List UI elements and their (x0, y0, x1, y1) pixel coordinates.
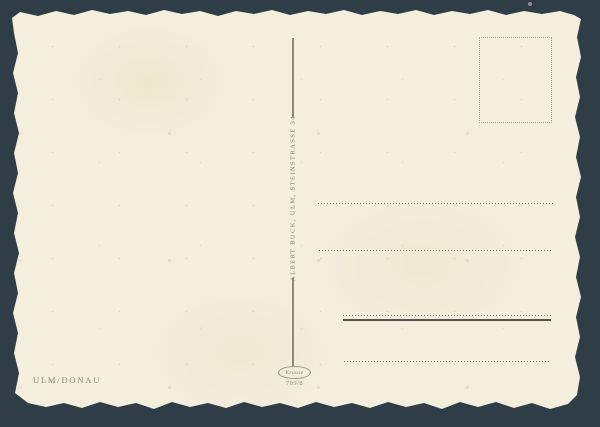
address-line-3 (343, 315, 551, 317)
address-line-2 (319, 250, 553, 252)
publisher-logo: Krause (278, 366, 311, 379)
postcard-back: ALBERT BUCK, ULM, STEINSTRASSE 34 ULM/DO… (12, 9, 582, 410)
stamp-box (479, 37, 552, 123)
series-number: 709/8 (278, 380, 311, 387)
postcard-caption: ULM/DONAU (33, 375, 101, 385)
divider-line-bottom (292, 278, 294, 366)
address-line-4 (344, 361, 551, 363)
scanned-photo-background: { "postcard": { "publisher_imprint": "AL… (0, 0, 600, 427)
divider-line-top (292, 38, 294, 117)
publisher-imprint: ALBERT BUCK, ULM, STEINSTRASSE 34 (284, 117, 302, 279)
address-line-1 (318, 203, 553, 205)
dust-speck (528, 2, 532, 6)
address-line-3-underline (343, 319, 551, 321)
